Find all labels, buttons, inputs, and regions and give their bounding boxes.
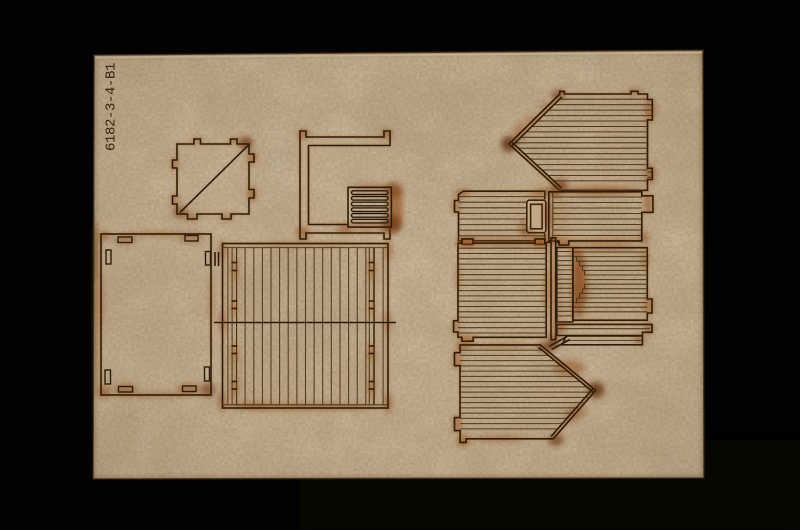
svg-text:6182-3-4-B1: 6182-3-4-B1 <box>104 63 120 151</box>
